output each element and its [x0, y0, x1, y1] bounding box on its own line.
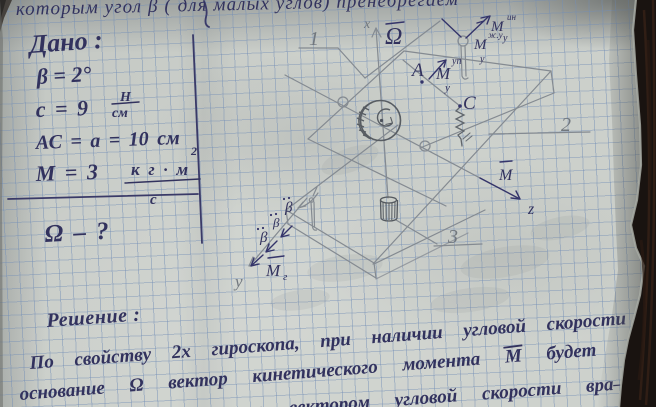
svg-text:АС = а = 10 см: АС = а = 10 см: [33, 127, 180, 154]
svg-text:ин: ин: [507, 12, 517, 22]
svg-text:Решение :: Решение :: [45, 303, 141, 332]
svg-text:A: A: [410, 60, 424, 81]
svg-text:β: β: [259, 230, 268, 246]
svg-text:y: y: [233, 272, 243, 291]
svg-text:М: М: [473, 37, 488, 53]
svg-text:β: β: [284, 200, 293, 216]
svg-text:3: 3: [447, 226, 458, 248]
svg-text:кг·м: кг·м: [131, 160, 188, 179]
svg-text:ж.у: ж.у: [488, 30, 503, 40]
svg-text:2: 2: [190, 144, 197, 158]
svg-text:z: z: [527, 201, 535, 218]
svg-text:у: у: [479, 54, 485, 65]
svg-text:2: 2: [561, 114, 571, 136]
svg-text:β: β: [272, 215, 280, 230]
svg-text:с: с: [150, 192, 157, 208]
svg-text:М: М: [265, 261, 281, 280]
svg-text:г: г: [283, 271, 288, 283]
svg-text:М = 3: М = 3: [34, 159, 98, 186]
svg-text:см: см: [112, 106, 128, 121]
svg-text:1: 1: [309, 28, 319, 50]
svg-text:β = 2°: β = 2°: [35, 61, 92, 89]
svg-text:у: у: [502, 33, 508, 44]
svg-text:Ω: Ω: [385, 24, 402, 50]
svg-text:x: x: [363, 17, 371, 32]
svg-text:М: М: [498, 167, 514, 184]
svg-text:М: М: [435, 64, 451, 83]
svg-text:Ω – ?: Ω – ?: [44, 218, 109, 248]
svg-text:у: у: [444, 82, 450, 94]
svg-text:C: C: [463, 93, 476, 114]
svg-text:c = 9: c = 9: [35, 95, 88, 122]
svg-text:уп: уп: [451, 56, 461, 67]
svg-text:которым угол β ( для малых: которым угол β ( для малых углов) пренеб…: [16, 0, 458, 20]
svg-text:Дано :: Дано :: [26, 25, 103, 59]
